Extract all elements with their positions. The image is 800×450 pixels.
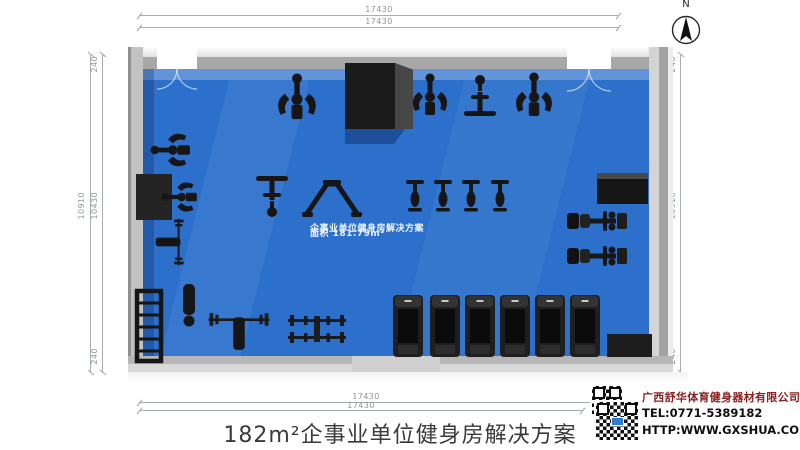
dimension-label-left-total: 10910 (77, 192, 86, 219)
column-bottom-right (607, 334, 652, 357)
north-indicator: N (664, 1, 708, 49)
dimension-label-top-inner: 17430 (140, 17, 618, 26)
column-right-wall (597, 173, 648, 204)
dimension-label-bottom-inner: 17430 (140, 392, 592, 401)
company-name: 广西舒华体育健身器材有限公司 (642, 389, 800, 405)
dimension-label-left-wall-top: 240 (90, 56, 99, 72)
dimension-line-bottom-outer (140, 410, 582, 411)
wall-right (649, 47, 673, 372)
wall-bottom-step (352, 356, 440, 372)
floor-watermark-area: 面积 181.79m² (310, 226, 385, 239)
plan-title: 182m²企事业单位健身房解决方案 (0, 417, 800, 449)
column-center-side (395, 63, 413, 129)
dimension-label-top-outer: 17430 (140, 5, 618, 14)
dimension-label-left-wall-bottom: 240 (90, 348, 99, 364)
outside-strip (128, 372, 688, 384)
north-arrow-icon (664, 9, 708, 49)
dimension-line-top-outer (140, 15, 618, 16)
door-opening-right (567, 47, 611, 69)
floor-plan-canvas: 17430 17430 17430 17430 10910 10430 240 … (0, 0, 800, 450)
column-left-wall (136, 174, 172, 220)
column-center-front (345, 63, 395, 129)
dimension-line-left-inner (102, 55, 103, 372)
dimension-label-bottom-outer: 17430 (140, 401, 582, 410)
dimension-label-left-inner: 10430 (90, 192, 99, 219)
dimension-line-top-inner (140, 27, 618, 28)
dimension-line-right-outer (680, 55, 681, 372)
door-opening-left (157, 47, 197, 69)
